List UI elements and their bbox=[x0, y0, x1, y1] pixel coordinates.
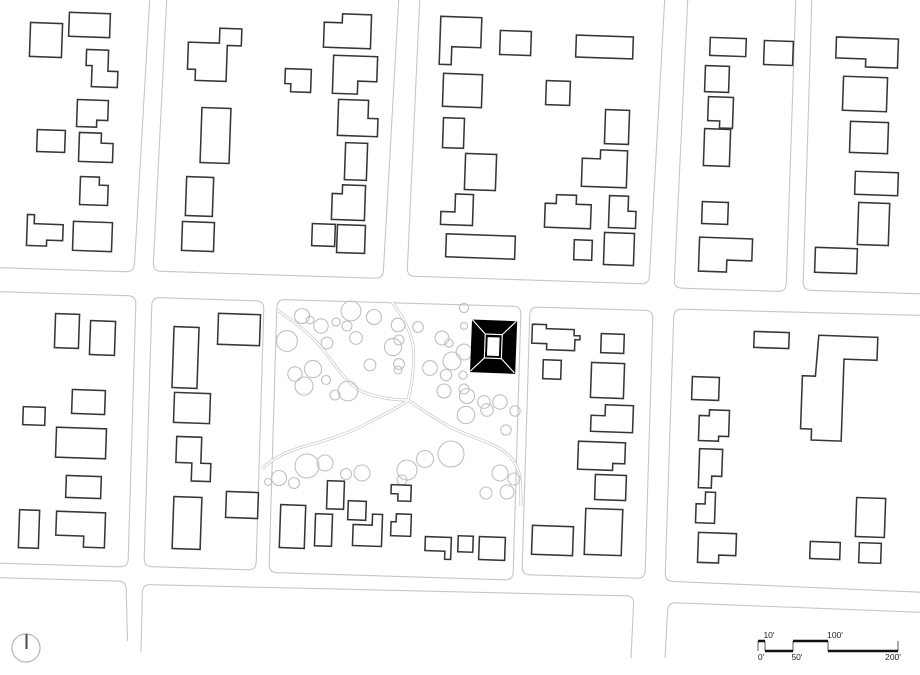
svg-text:100': 100' bbox=[827, 630, 843, 640]
svg-text:10': 10' bbox=[763, 630, 774, 640]
svg-text:0': 0' bbox=[758, 652, 765, 662]
svg-text:200': 200' bbox=[885, 652, 901, 662]
svg-text:50': 50' bbox=[791, 652, 802, 662]
